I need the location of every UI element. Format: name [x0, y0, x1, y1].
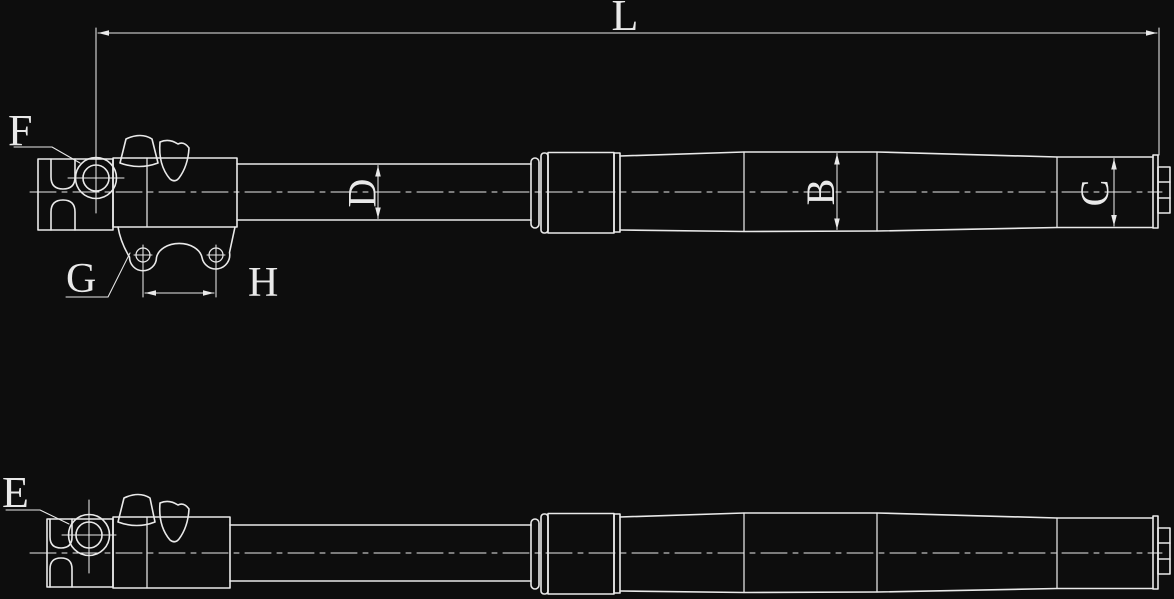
bottom-view: E [2, 468, 1170, 594]
dim-label-H: H [248, 260, 278, 306]
dim-label-D: D [340, 179, 385, 208]
clamp-lower-lobe-b [50, 558, 72, 587]
outer-tube-bottom-edge [620, 228, 1153, 232]
callout-label-G: G [66, 256, 96, 302]
seal-ring-1 [531, 158, 539, 228]
dim-label-B: B [798, 179, 843, 206]
adjuster-knob-b [118, 495, 155, 526]
threaded-stub-b [1158, 528, 1170, 574]
threaded-stub-ribs-b [1158, 543, 1170, 559]
threaded-stub-ribs [1158, 182, 1170, 198]
seal-ring-1-b [531, 519, 539, 589]
adjuster-knob [120, 136, 158, 167]
outer-tube-top-edge [620, 152, 1153, 157]
top-view [30, 28, 1170, 297]
outer-tube-bottom-edge-b [620, 589, 1153, 593]
clamp-upper-lobe [51, 159, 75, 189]
clamp-lower-lobe [51, 200, 75, 230]
dim-label-C: C [1072, 180, 1117, 207]
outer-tube-top-edge-b [620, 513, 1153, 518]
callout-label-E: E [2, 468, 29, 517]
seal-ring-2-b [541, 514, 548, 594]
collar-body [548, 153, 614, 234]
cable-hook [160, 140, 189, 180]
callout-label-F: F [8, 106, 32, 155]
seal-ring-2 [541, 153, 548, 233]
cable-hook-b [160, 501, 189, 541]
dim-label-L: L [612, 0, 639, 40]
fender-bracket [118, 227, 235, 271]
collar-body-b [548, 514, 614, 595]
cad-drawing: L D B C H F G [0, 0, 1174, 599]
threaded-stub [1158, 167, 1170, 213]
